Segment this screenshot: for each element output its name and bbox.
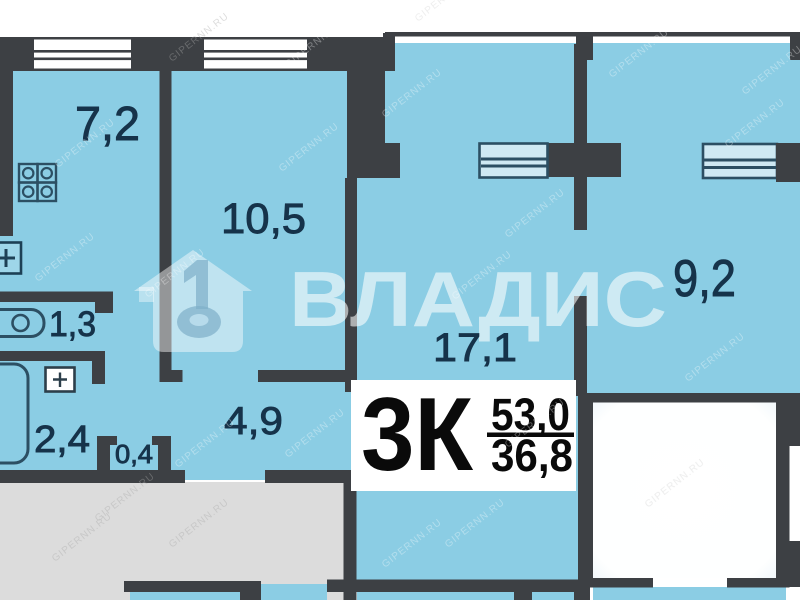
svg-text:3К: 3К bbox=[361, 377, 473, 493]
svg-text:17,1: 17,1 bbox=[433, 326, 517, 370]
svg-text:36,8: 36,8 bbox=[491, 430, 573, 481]
svg-text:2,4: 2,4 bbox=[34, 419, 90, 461]
svg-text:0,4: 0,4 bbox=[115, 439, 153, 469]
svg-text:9,2: 9,2 bbox=[673, 250, 736, 308]
svg-text:1,3: 1,3 bbox=[49, 305, 96, 344]
svg-text:10,5: 10,5 bbox=[221, 195, 306, 243]
